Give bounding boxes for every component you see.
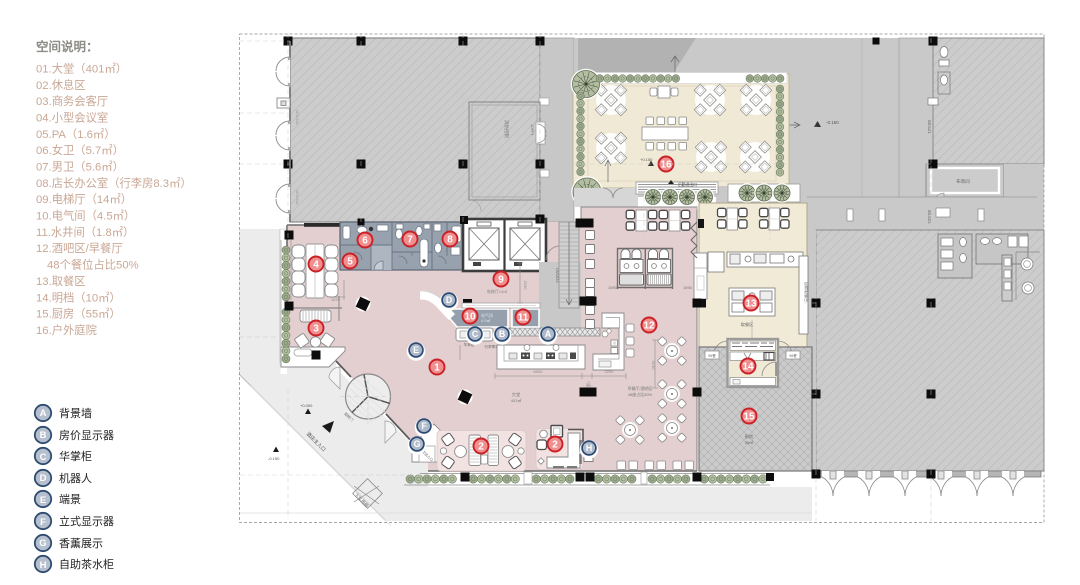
svg-text:9: 9 [498, 275, 504, 286]
svg-text:2250: 2250 [605, 369, 615, 374]
svg-text:G: G [39, 538, 46, 549]
svg-text:空间说明：: 空间说明： [36, 39, 99, 54]
svg-text:1870: 1870 [331, 297, 341, 302]
svg-text:-0.150: -0.150 [268, 456, 280, 461]
svg-text:2190: 2190 [523, 281, 528, 291]
svg-text:C: C [472, 329, 479, 339]
svg-text:E: E [40, 495, 46, 506]
svg-text:05.PA（1.6㎡）: 05.PA（1.6㎡） [36, 128, 116, 141]
svg-text:03.商务会客厅: 03.商务会客厅 [36, 94, 108, 108]
svg-text:8: 8 [447, 235, 453, 246]
svg-text:+0.150: +0.150 [640, 157, 653, 162]
svg-text:11: 11 [518, 313, 529, 324]
svg-text:7: 7 [407, 235, 413, 246]
svg-text:1590: 1590 [683, 285, 693, 290]
svg-text:-0.150: -0.150 [826, 120, 839, 125]
svg-text:6000: 6000 [534, 369, 544, 374]
svg-text:2: 2 [478, 442, 484, 453]
svg-text:7逢: 7逢 [586, 381, 592, 387]
svg-text:机器人: 机器人 [59, 471, 92, 485]
svg-text:55㎡: 55㎡ [745, 439, 753, 445]
svg-text:4: 4 [313, 260, 319, 271]
svg-text:华掌柜: 华掌柜 [59, 449, 92, 463]
svg-text:1: 1 [434, 363, 440, 374]
svg-text:消防控制: 消防控制 [503, 120, 510, 138]
svg-text:D: D [40, 473, 47, 484]
svg-text:15: 15 [743, 412, 755, 423]
svg-text:01.大堂（401㎡）: 01.大堂（401㎡） [36, 61, 127, 75]
svg-text:16.户外庭院: 16.户外庭院 [36, 323, 97, 337]
svg-text:10PF1: 10PF1 [530, 124, 535, 137]
svg-text:48个餐位占比50%: 48个餐位占比50% [47, 258, 139, 272]
svg-text:端景: 端景 [59, 493, 81, 506]
svg-text:厨房: 厨房 [745, 433, 753, 440]
svg-text:15.厨房（55㎡）: 15.厨房（55㎡） [36, 308, 121, 321]
svg-text:房价显示器: 房价显示器 [59, 429, 114, 442]
svg-text:+0.000: +0.000 [300, 403, 313, 408]
svg-text:H: H [586, 443, 592, 453]
svg-text:F: F [40, 517, 46, 528]
svg-text:96餐: 96餐 [789, 353, 797, 358]
svg-text:07.男卫（5.6㎡）: 07.男卫（5.6㎡） [36, 161, 124, 174]
svg-text:14.明档（10㎡）: 14.明档（10㎡） [36, 290, 121, 304]
svg-text:M2134a: M2134a [295, 190, 300, 205]
svg-text:06.女卫（5.7㎡）: 06.女卫（5.7㎡） [36, 143, 124, 157]
svg-text:电梯厅14㎡: 电梯厅14㎡ [487, 288, 507, 294]
svg-text:早餐厅/酒吧区: 早餐厅/酒吧区 [627, 385, 652, 391]
svg-text:1590: 1590 [608, 285, 618, 290]
svg-text:13: 13 [745, 299, 757, 310]
svg-text:自助取餐台: 自助取餐台 [804, 282, 810, 302]
svg-text:背景墙: 背景墙 [59, 406, 92, 420]
svg-text:12: 12 [643, 321, 655, 332]
svg-text:M2134a: M2134a [295, 110, 300, 125]
svg-text:4130: 4130 [651, 361, 656, 371]
svg-text:D: D [446, 295, 452, 305]
svg-text:5: 5 [347, 257, 353, 268]
svg-text:96餐: 96餐 [708, 353, 716, 358]
svg-text:取餐区: 取餐区 [741, 321, 754, 328]
svg-text:B: B [499, 329, 505, 339]
svg-text:A: A [545, 329, 552, 339]
svg-text:2: 2 [552, 440, 558, 451]
svg-text:11.水井间（1.8㎡）: 11.水井间（1.8㎡） [36, 225, 134, 239]
svg-text:后勤进出口: 后勤进出口 [678, 182, 697, 187]
svg-text:G: G [414, 439, 421, 449]
svg-text:3: 3 [313, 324, 319, 335]
svg-text:08.店长办公室（行李房8.3㎡）: 08.店长办公室（行李房8.3㎡） [36, 176, 192, 190]
svg-text:10: 10 [464, 312, 476, 323]
svg-text:B: B [40, 430, 47, 441]
svg-text:C: C [40, 452, 47, 463]
svg-text:大堂: 大堂 [512, 391, 520, 398]
svg-text:A: A [40, 408, 47, 419]
svg-text:香薰展示: 香薰展示 [59, 536, 103, 550]
svg-text:6: 6 [362, 236, 368, 247]
svg-text:布草间: 布草间 [956, 178, 970, 185]
svg-text:401㎡: 401㎡ [511, 397, 522, 403]
svg-text:F: F [421, 421, 427, 431]
svg-text:LW1024: LW1024 [555, 268, 560, 283]
svg-text:14: 14 [742, 362, 754, 373]
svg-text:立式显示器: 立式显示器 [59, 514, 114, 528]
svg-text:02.休息区: 02.休息区 [36, 78, 86, 92]
svg-text:4.5㎡: 4.5㎡ [481, 317, 491, 323]
svg-text:13.取餐区: 13.取餐区 [36, 274, 86, 288]
svg-text:H: H [40, 560, 47, 571]
svg-text:48座占比50%: 48座占比50% [628, 391, 653, 397]
svg-text:自助茶水柜: 自助茶水柜 [59, 557, 114, 571]
svg-text:10.电气间（4.5㎡）: 10.电气间（4.5㎡） [36, 209, 135, 223]
svg-text:E: E [413, 345, 419, 355]
svg-text:12.酒吧区/早餐厅: 12.酒吧区/早餐厅 [36, 241, 123, 255]
svg-text:09.电梯厅（14㎡）: 09.电梯厅（14㎡） [36, 193, 132, 206]
svg-text:04.小型会议室: 04.小型会议室 [36, 110, 108, 124]
svg-text:16: 16 [660, 160, 672, 171]
